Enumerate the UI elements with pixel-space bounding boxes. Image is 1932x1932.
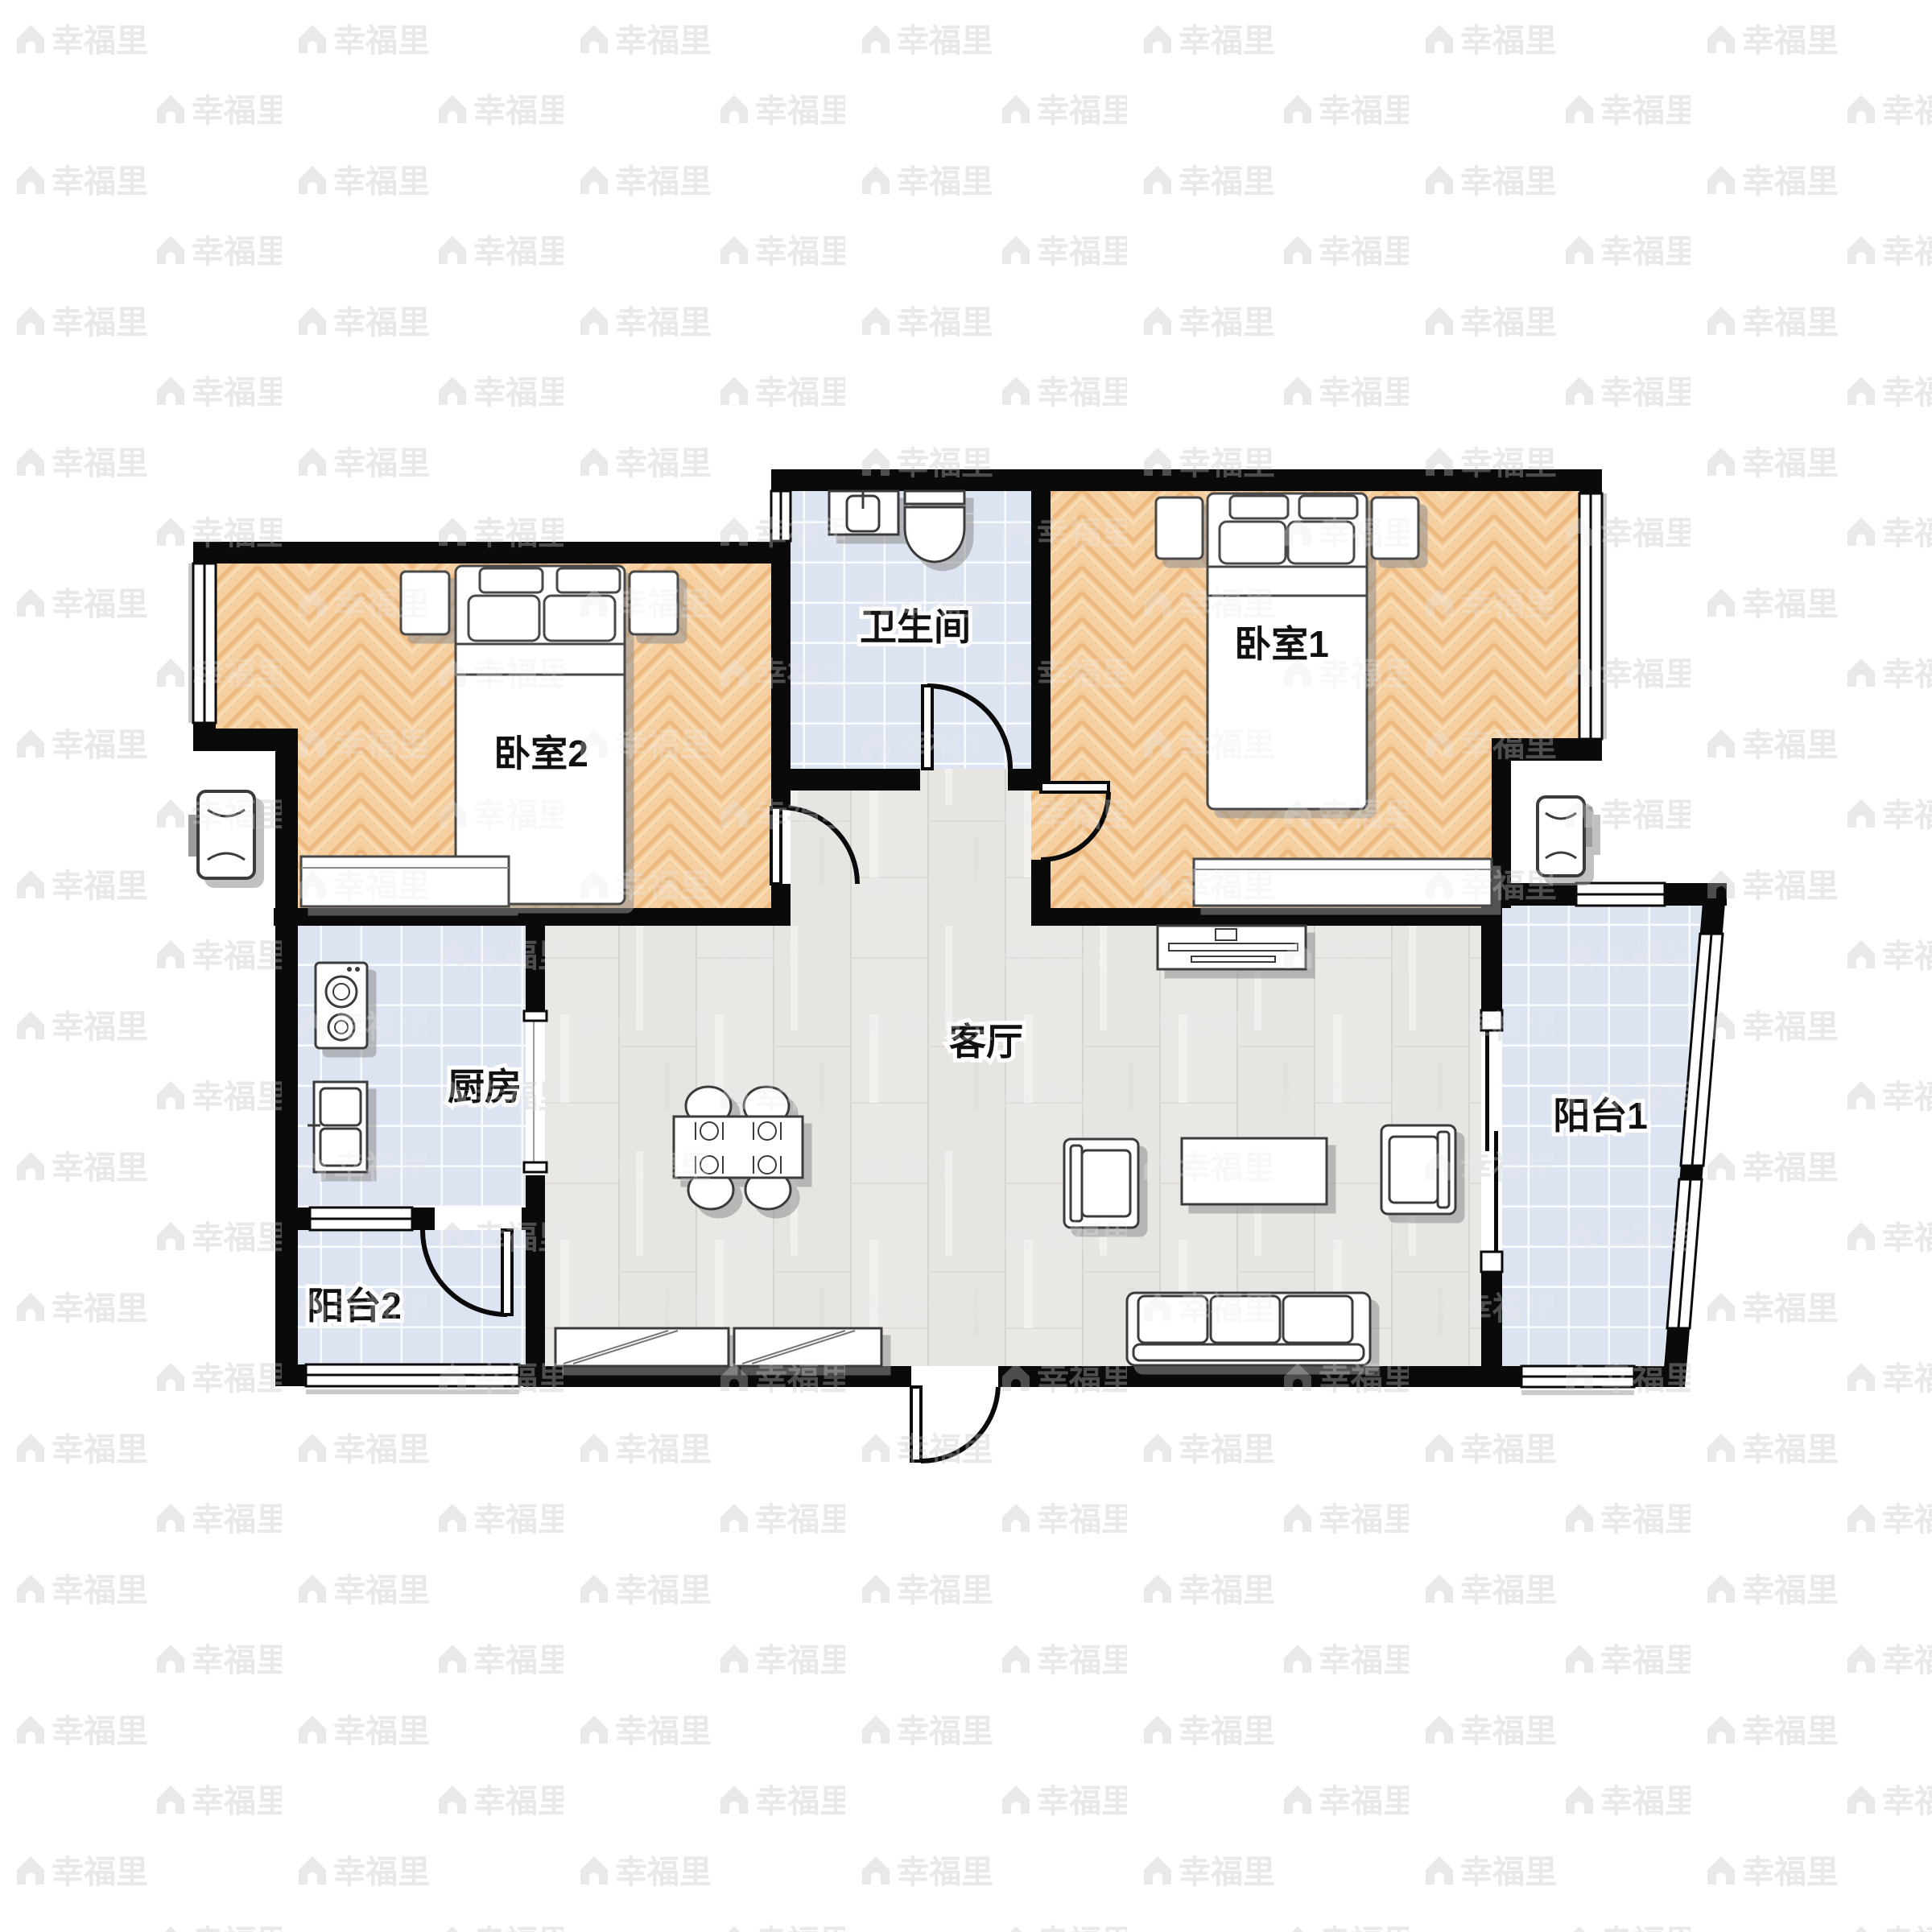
- air-conditioner-icon: [188, 791, 254, 878]
- coffee-table-icon: [1182, 1138, 1327, 1204]
- armchair-icon: [1381, 1125, 1455, 1214]
- toilet-icon: [905, 491, 964, 562]
- room-label-balcony1: 阳台1: [1553, 1095, 1648, 1137]
- kitchen-balcony2-window: [310, 1207, 412, 1230]
- bedroom1-window: [1579, 493, 1607, 739]
- balcony1-top-window: [1576, 883, 1665, 906]
- room-label-bedroom1: 卧室1: [1234, 623, 1329, 665]
- balcony1-bottom-window: [1521, 1366, 1634, 1395]
- nightstand-icon: [401, 572, 449, 634]
- nightstand-icon: [1156, 497, 1203, 559]
- floor-plan: 幸福里 幸福里: [0, 0, 1932, 1932]
- wardrobe-cabinet-icon: [1194, 859, 1492, 906]
- nightstand-icon: [1372, 497, 1418, 559]
- armchair-icon: [1064, 1139, 1138, 1228]
- tv-icon: [1169, 943, 1298, 951]
- balcony2-bottom-window: [306, 1364, 519, 1394]
- tv-cabinet-icon: [1158, 926, 1306, 969]
- shoe-cabinet-icon: [734, 1328, 881, 1366]
- sink-icon: [829, 491, 898, 535]
- air-conditioner-icon: [1538, 797, 1592, 876]
- room-label-kitchen: 厨房: [448, 1066, 522, 1108]
- sofa-icon: [1127, 1293, 1370, 1365]
- tv-icon: [1216, 929, 1236, 940]
- shoe-cabinet-icon: [555, 1328, 729, 1366]
- room-label-living: 客厅: [949, 1021, 1023, 1063]
- hallway-floor: [791, 769, 1031, 926]
- nightstand-icon: [630, 572, 678, 634]
- room-label-bedroom2: 卧室2: [493, 733, 588, 774]
- floor-plan-page: 幸福里 幸福里: [0, 0, 1932, 1932]
- bathroom-window: [771, 491, 791, 541]
- room-label-bathroom: 卫生间: [860, 606, 971, 648]
- bedroom2-window: [188, 563, 216, 723]
- room-label-balcony2: 阳台2: [307, 1285, 402, 1327]
- stove-icon: [316, 963, 367, 1048]
- wardrobe-cabinet-icon: [301, 857, 509, 906]
- kitchen-sink-icon: [308, 1082, 367, 1172]
